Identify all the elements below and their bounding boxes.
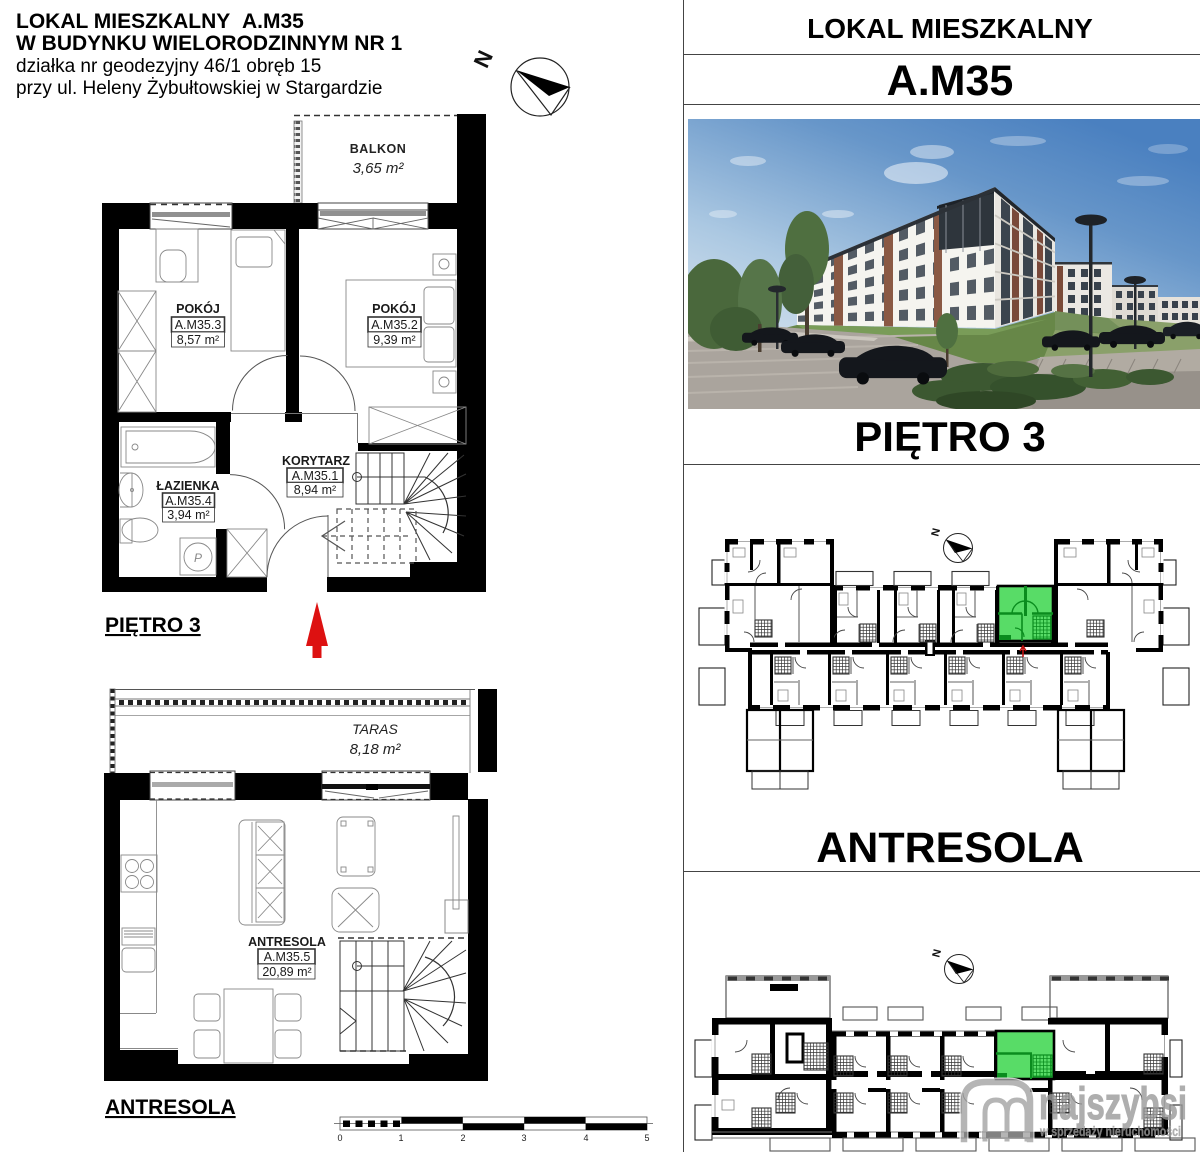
svg-text:W BUDYNKU WIELORODZINNYM NR 1: W BUDYNKU WIELORODZINNYM NR 1: [16, 32, 402, 55]
svg-text:2: 2: [460, 1133, 465, 1143]
svg-text:działka nr geodezyjny 46/1 obr: działka nr geodezyjny 46/1 obręb 15: [16, 56, 321, 77]
svg-text:1: 1: [398, 1133, 403, 1143]
svg-text:A.M35.4: A.M35.4: [165, 494, 212, 508]
svg-text:ANTRESOLA: ANTRESOLA: [105, 1096, 236, 1119]
svg-text:PIĘTRO 3: PIĘTRO 3: [105, 614, 201, 637]
svg-text:TARAS: TARAS: [352, 721, 398, 737]
svg-text:ŁAZIENKA: ŁAZIENKA: [156, 479, 219, 493]
svg-text:20,89 m²: 20,89 m²: [262, 965, 311, 979]
svg-text:N: N: [929, 948, 943, 959]
svg-text:A.M35.3: A.M35.3: [175, 318, 222, 332]
svg-text:9,39 m²: 9,39 m²: [373, 333, 415, 347]
svg-text:8,94 m²: 8,94 m²: [294, 483, 336, 497]
svg-text:w sprzedaży nieruchomości: w sprzedaży nieruchomości: [1039, 1123, 1181, 1139]
svg-text:3,65 m²: 3,65 m²: [353, 160, 405, 177]
svg-text:POKÓJ: POKÓJ: [176, 301, 220, 316]
svg-text:0: 0: [337, 1133, 342, 1143]
svg-text:3: 3: [521, 1133, 526, 1143]
svg-text:5: 5: [644, 1133, 649, 1143]
svg-text:POKÓJ: POKÓJ: [372, 301, 416, 316]
svg-text:N: N: [469, 47, 498, 72]
svg-text:A.M35.2: A.M35.2: [371, 318, 418, 332]
svg-text:8,18 m²: 8,18 m²: [350, 741, 402, 758]
svg-text:najszybsi: najszybsi: [1039, 1078, 1187, 1129]
svg-text:3,94 m²: 3,94 m²: [167, 508, 209, 522]
svg-text:BALKON: BALKON: [350, 142, 406, 156]
svg-text:przy ul. Heleny Żybułtowskiej: przy ul. Heleny Żybułtowskiej w Stargard…: [16, 78, 382, 99]
svg-text:4: 4: [583, 1133, 588, 1143]
svg-text:ANTRESOLA: ANTRESOLA: [248, 935, 326, 949]
svg-text:A.M35.5: A.M35.5: [264, 950, 311, 964]
svg-text:8,57 m²: 8,57 m²: [177, 333, 219, 347]
svg-text:P: P: [194, 551, 202, 565]
svg-text:KORYTARZ: KORYTARZ: [282, 454, 350, 468]
svg-text:A.M35.1: A.M35.1: [292, 469, 339, 483]
svg-text:LOKAL MIESZKALNY A.M35: LOKAL MIESZKALNY A.M35: [16, 10, 304, 33]
svg-text:N: N: [928, 527, 942, 538]
